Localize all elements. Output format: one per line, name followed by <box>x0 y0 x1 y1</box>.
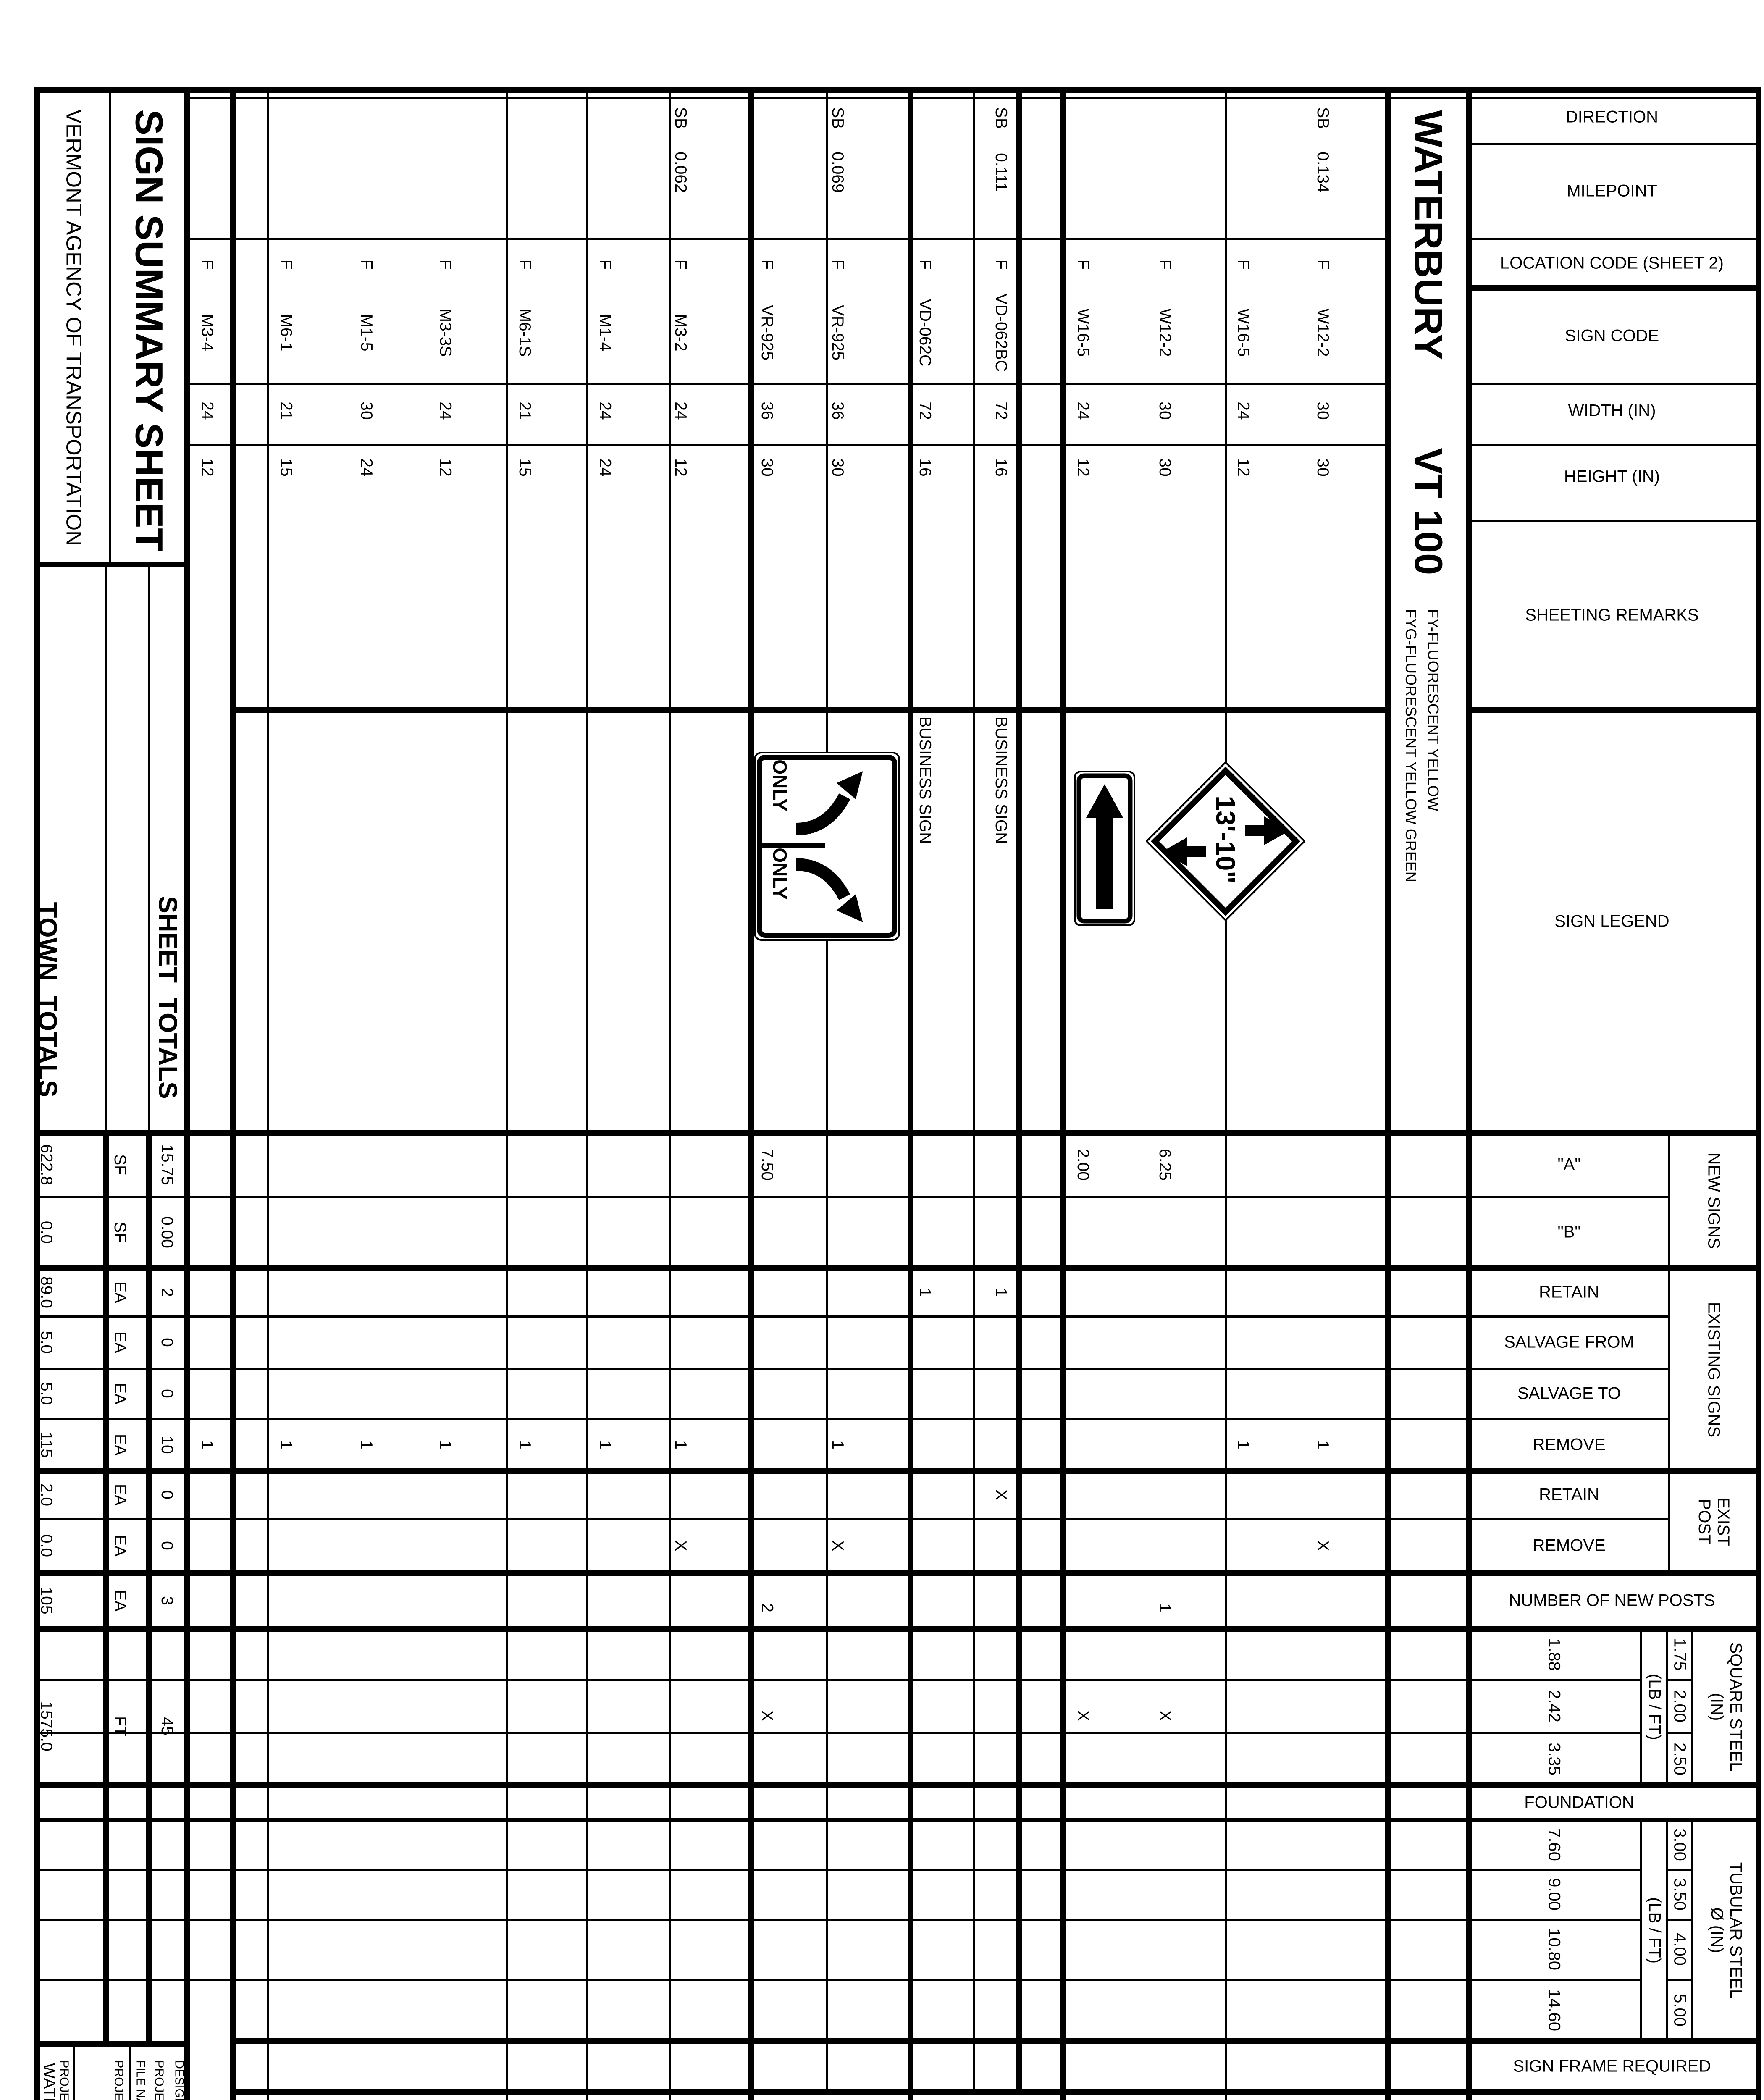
svg-text:13'-10": 13'-10" <box>1210 795 1241 883</box>
svg-text:ONLY: ONLY <box>769 759 791 811</box>
svg-text:ONLY: ONLY <box>769 848 791 900</box>
